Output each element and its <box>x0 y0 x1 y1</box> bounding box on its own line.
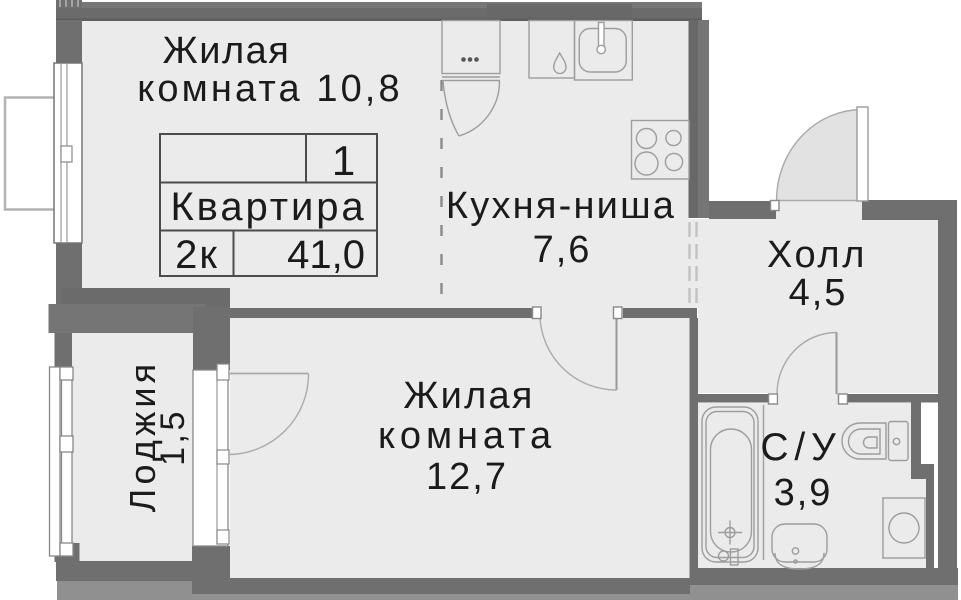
svg-text:41,0: 41,0 <box>287 233 365 277</box>
svg-text:12,7: 12,7 <box>426 456 508 498</box>
svg-text:Жилая: Жилая <box>403 375 534 417</box>
svg-text:3,9: 3,9 <box>774 472 833 514</box>
svg-text:С/У: С/У <box>760 426 841 469</box>
svg-text:1,5: 1,5 <box>154 408 192 466</box>
svg-text:комната 10,8: комната 10,8 <box>137 68 402 110</box>
svg-text:Холл: Холл <box>767 234 867 276</box>
svg-text:7,6: 7,6 <box>533 229 592 271</box>
svg-text:Кухня-ниша: Кухня-ниша <box>446 185 676 227</box>
svg-text:Жилая: Жилая <box>163 30 291 72</box>
svg-text:4,5: 4,5 <box>789 272 848 314</box>
svg-text:Квартира: Квартира <box>170 185 366 229</box>
svg-text:2к: 2к <box>175 233 219 277</box>
svg-text:1: 1 <box>332 137 355 184</box>
svg-text:комната: комната <box>378 415 556 457</box>
